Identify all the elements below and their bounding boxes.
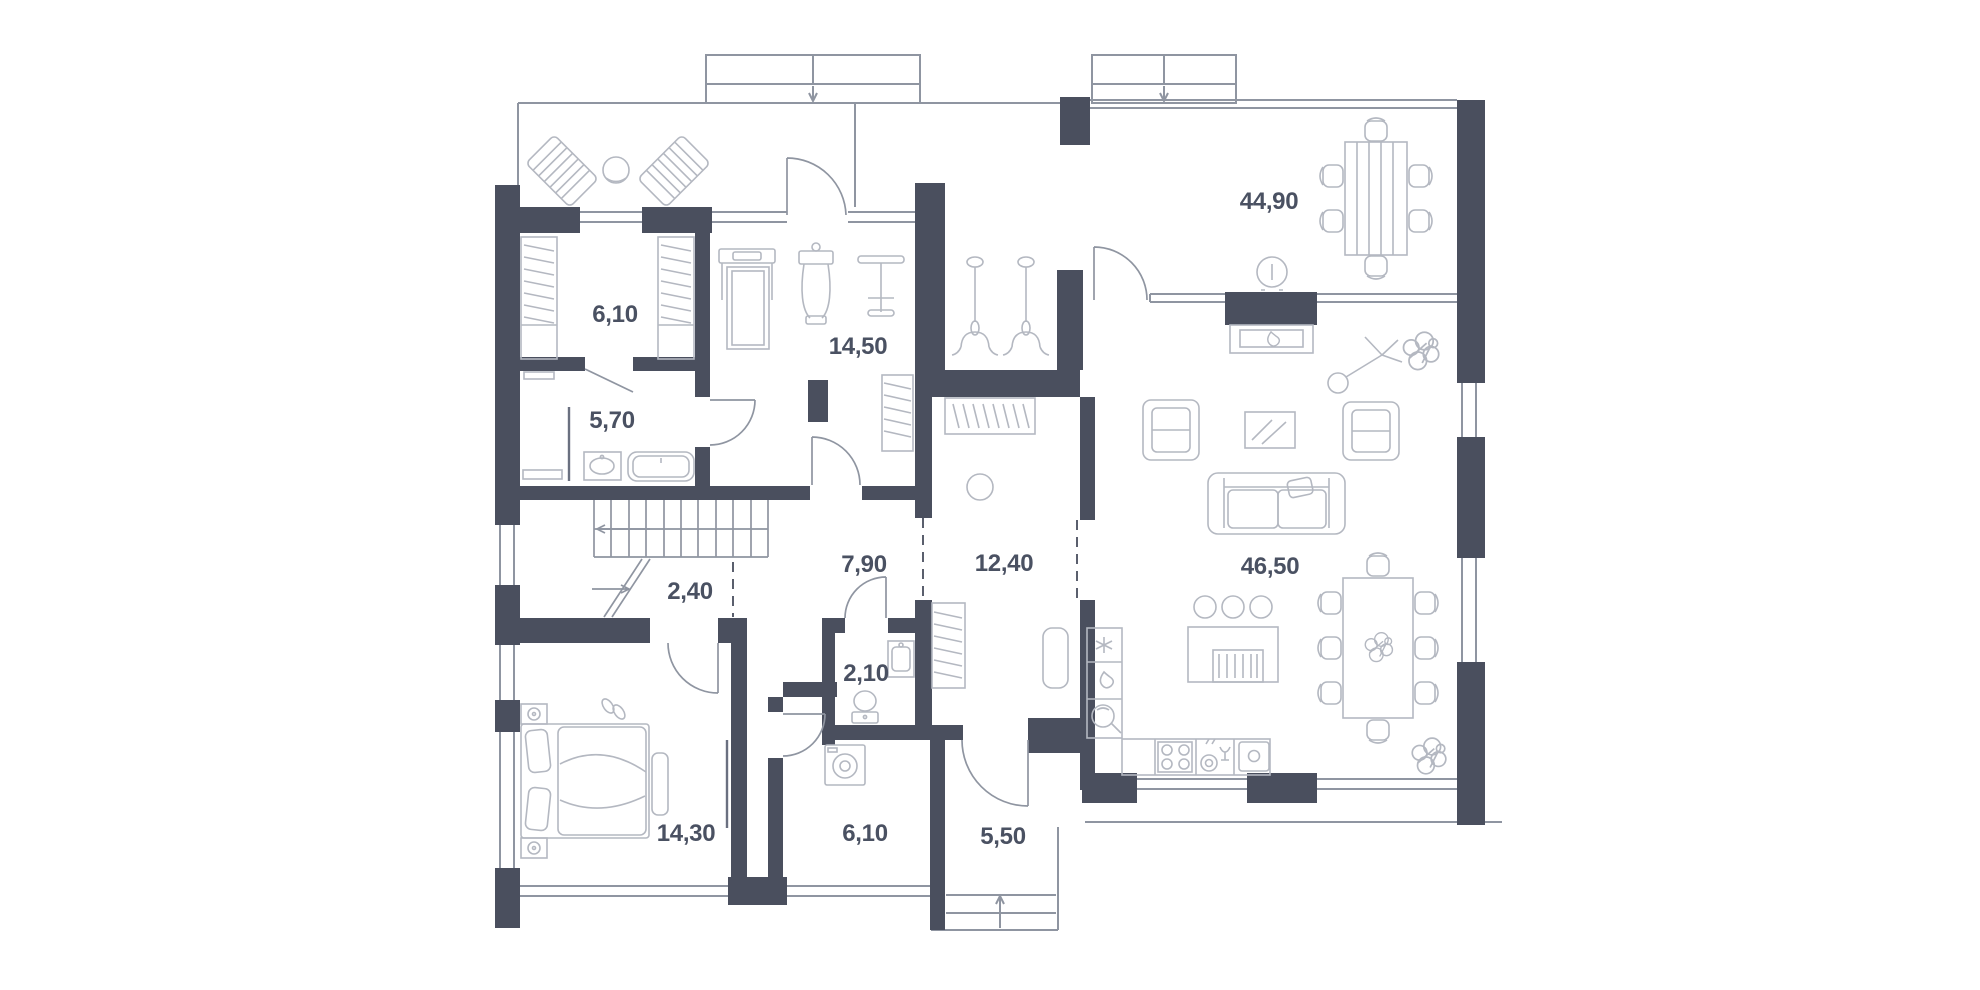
chair-icon bbox=[1365, 118, 1387, 141]
walls bbox=[495, 97, 1485, 930]
window-top-1 bbox=[580, 212, 642, 222]
nightstand-icon bbox=[521, 704, 547, 724]
room-label-stair-hall: 2,40 bbox=[667, 578, 713, 605]
corridor-furniture bbox=[932, 398, 1068, 688]
exterior-steps-top-left bbox=[706, 55, 920, 103]
stair-arrow-right bbox=[592, 585, 629, 593]
door-bathroom-lower bbox=[783, 714, 825, 756]
window-top-2 bbox=[712, 212, 787, 222]
fireplace-wall bbox=[1225, 292, 1317, 325]
bench-icon bbox=[652, 753, 668, 815]
double-bed-icon bbox=[521, 724, 649, 838]
plant-icon bbox=[1365, 633, 1392, 662]
cooktop-icon bbox=[1158, 742, 1192, 772]
kitchen-island-icon bbox=[1188, 627, 1278, 682]
coffee-table-icon bbox=[1245, 412, 1295, 448]
pillow-icon bbox=[525, 729, 551, 773]
pouf-icon bbox=[967, 474, 993, 500]
fireplace-icon bbox=[1230, 325, 1313, 353]
window-bottom-right-2 bbox=[1317, 779, 1457, 789]
kitchen-living-furniture bbox=[1143, 400, 1446, 774]
toilet-icon bbox=[852, 691, 878, 723]
door-terrace bbox=[787, 158, 846, 215]
terrace-furniture bbox=[526, 135, 710, 207]
chair-icon bbox=[1320, 210, 1343, 232]
window-left-2 bbox=[500, 645, 514, 700]
weight-station-icon bbox=[858, 256, 904, 316]
window-right-2 bbox=[1462, 558, 1476, 662]
kitchen-sink-icon bbox=[1239, 742, 1269, 771]
bar-stool-icon bbox=[1250, 596, 1272, 618]
chair-icon bbox=[1415, 592, 1438, 614]
shelf-icon bbox=[524, 372, 554, 379]
pillow-icon bbox=[525, 787, 551, 831]
plant-icon bbox=[1412, 738, 1446, 774]
kitchen-furniture bbox=[1087, 596, 1278, 775]
door-gym-lobby bbox=[710, 400, 755, 445]
room-label-bathroom-lower: 6,10 bbox=[842, 820, 888, 847]
wardrobe-icon bbox=[882, 375, 913, 451]
chair-icon bbox=[1320, 165, 1343, 187]
terrace-table-icon bbox=[603, 157, 629, 183]
pot-icon bbox=[1092, 705, 1121, 733]
chair-icon bbox=[1318, 592, 1341, 614]
bar-stool-icon bbox=[1194, 596, 1216, 618]
washing-machine-icon bbox=[825, 745, 865, 785]
window-left-3 bbox=[500, 730, 514, 868]
treadmill-icon bbox=[719, 249, 775, 349]
exercise-machine-icon bbox=[799, 243, 833, 324]
window-left-1 bbox=[500, 525, 514, 585]
chair-icon bbox=[1318, 682, 1341, 704]
window-top-3 bbox=[848, 212, 915, 222]
stair-arrow-left bbox=[597, 525, 650, 533]
wardrobe-icon bbox=[932, 603, 965, 688]
room-label-living-dining: 44,90 bbox=[1240, 188, 1299, 215]
bar-stool-icon bbox=[1222, 596, 1244, 618]
sun-lounger-icon bbox=[526, 135, 598, 207]
window-bedroom-2 bbox=[787, 886, 930, 896]
floor-lamp-icon bbox=[1328, 337, 1402, 393]
floor-plan-svg: 6,10 5,70 14,50 2,40 7,90 12,40 2,10 44,… bbox=[0, 0, 1980, 990]
chair-icon bbox=[1318, 637, 1341, 659]
bench-icon bbox=[1043, 628, 1068, 688]
wardrobe-icon bbox=[658, 237, 694, 359]
nightstand-icon bbox=[521, 838, 547, 858]
door-bedroom bbox=[668, 643, 718, 693]
bathroom-lower-furniture bbox=[825, 745, 865, 785]
kitchen-counter bbox=[1122, 739, 1270, 775]
room-label-bathroom-upper: 5,70 bbox=[589, 407, 635, 434]
chair-icon bbox=[1409, 165, 1432, 187]
plant-icon bbox=[1404, 332, 1439, 369]
chair-icon bbox=[1367, 720, 1389, 743]
floor-plan-page: 6,10 5,70 14,50 2,40 7,90 12,40 2,10 44,… bbox=[0, 0, 1980, 990]
door-wardrobe-bath-leaf bbox=[585, 369, 633, 392]
door-wc bbox=[845, 577, 886, 618]
down-arrow-icon bbox=[1160, 86, 1168, 101]
round-table-icon bbox=[1257, 257, 1287, 290]
exterior-steps-top-right bbox=[1092, 55, 1236, 103]
spin-bikes bbox=[952, 257, 1049, 355]
spin-bike-icon bbox=[1003, 257, 1049, 355]
room-label-corridor: 12,40 bbox=[975, 550, 1034, 577]
wardrobe-icon bbox=[521, 237, 557, 359]
washbasin-icon bbox=[584, 452, 621, 480]
sofa-icon bbox=[1208, 473, 1345, 534]
window-bottom-right-1 bbox=[1137, 779, 1247, 789]
refrigerator-icon bbox=[1096, 637, 1112, 653]
room-label-entryway: 5,50 bbox=[980, 823, 1026, 850]
dining-table-8-icon bbox=[1343, 578, 1413, 718]
door-living bbox=[1094, 247, 1147, 300]
slippers-icon bbox=[600, 697, 628, 721]
duvet-icon bbox=[558, 727, 646, 835]
bathtub-icon bbox=[628, 452, 694, 481]
room-label-wc: 2,10 bbox=[843, 660, 889, 687]
window-bedroom-1 bbox=[520, 886, 728, 896]
chair-icon bbox=[1415, 637, 1438, 659]
dishwasher-icon bbox=[1201, 739, 1230, 771]
chair-icon bbox=[1367, 553, 1389, 576]
shelf-icon bbox=[523, 470, 562, 479]
down-arrow-icon bbox=[809, 86, 817, 101]
room-label-wardrobe-upper: 6,10 bbox=[592, 301, 638, 328]
door-entry bbox=[962, 740, 1028, 806]
door-gym-hall bbox=[812, 437, 860, 485]
room-label-kitchen-living: 46,50 bbox=[1241, 553, 1300, 580]
room-label-gym: 14,50 bbox=[829, 333, 888, 360]
armchair-icon bbox=[1343, 402, 1399, 460]
chair-icon bbox=[1409, 210, 1432, 232]
column bbox=[808, 380, 828, 422]
living-dining-furniture bbox=[1230, 118, 1439, 393]
chair-icon bbox=[1415, 682, 1438, 704]
chair-icon bbox=[1365, 256, 1387, 279]
armchair-icon bbox=[1143, 400, 1199, 460]
room-label-bedroom: 14,30 bbox=[657, 820, 716, 847]
oven-icon bbox=[1100, 672, 1113, 688]
window-right-1 bbox=[1462, 383, 1476, 437]
sun-lounger-icon bbox=[638, 135, 710, 207]
dining-table-6-icon bbox=[1345, 142, 1407, 255]
coat-rack-icon bbox=[945, 398, 1035, 434]
room-label-hallway: 7,90 bbox=[841, 551, 887, 578]
vanity-sink-icon bbox=[888, 641, 914, 677]
spin-bike-icon bbox=[952, 257, 998, 355]
